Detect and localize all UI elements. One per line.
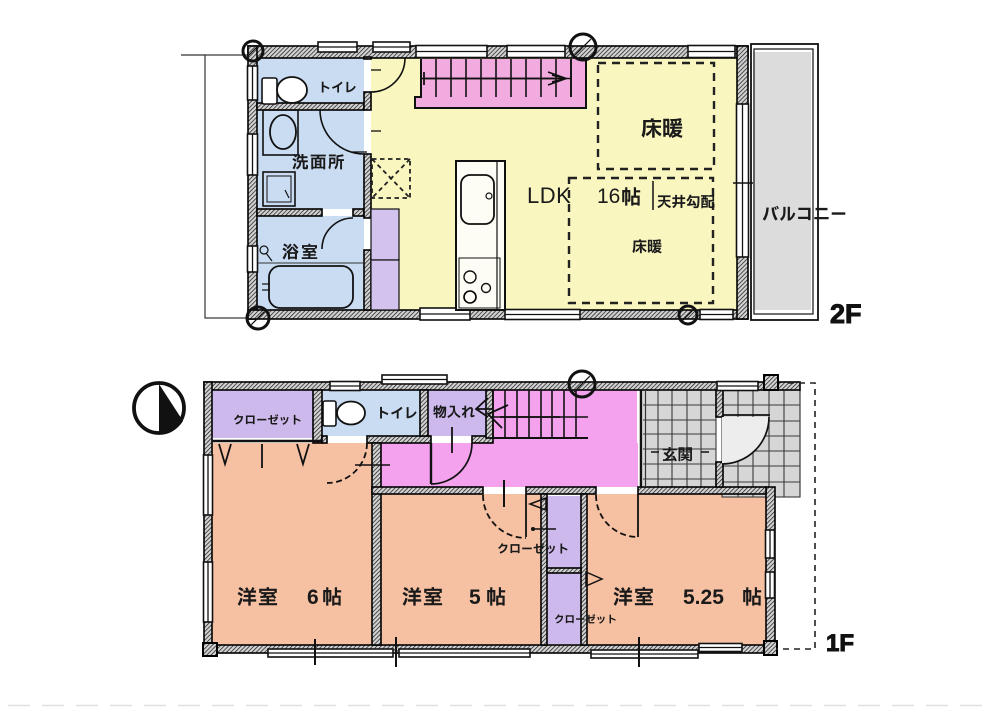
svg-text:1F: 1F bbox=[826, 630, 854, 657]
svg-text:LDK: LDK bbox=[527, 183, 571, 208]
svg-text:5.25: 5.25 bbox=[683, 586, 724, 609]
svg-text:2F: 2F bbox=[830, 299, 862, 329]
svg-text:16: 16 bbox=[597, 185, 620, 208]
svg-text:5: 5 bbox=[469, 586, 481, 609]
svg-text:6: 6 bbox=[307, 586, 319, 609]
